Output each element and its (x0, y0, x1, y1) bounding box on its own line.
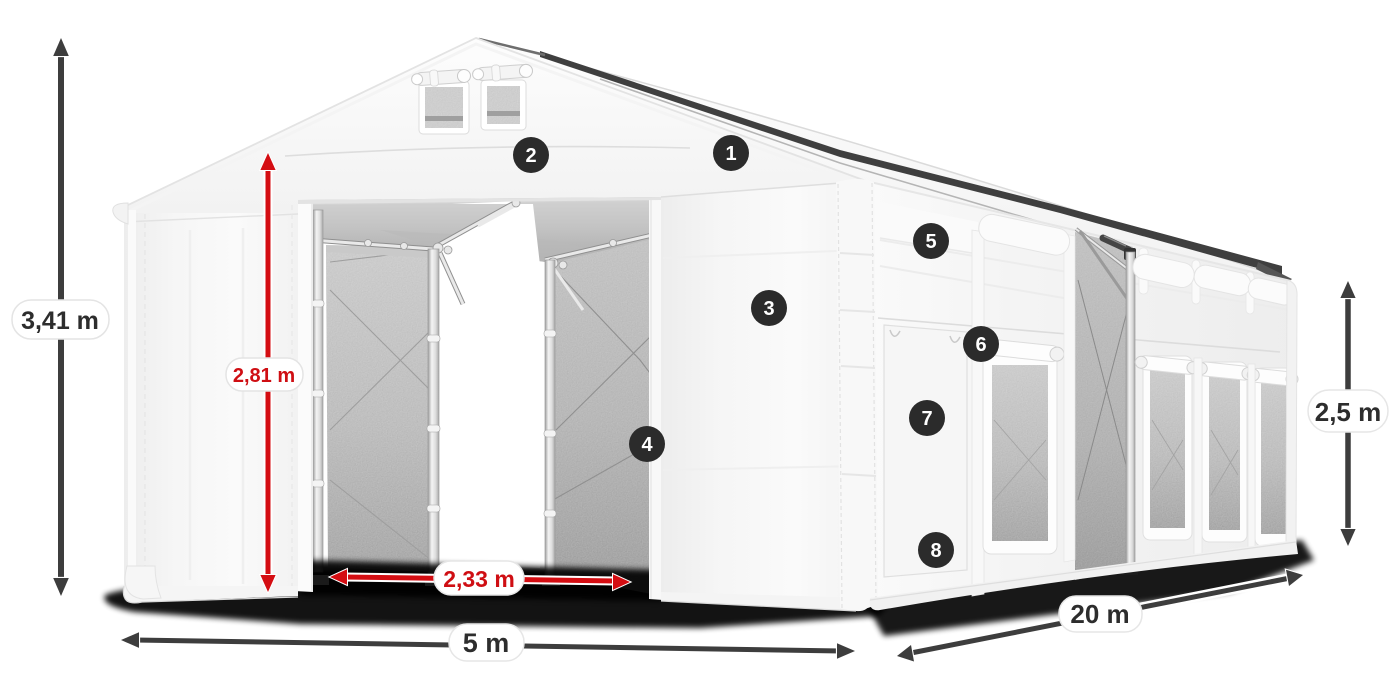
svg-text:2,5 m: 2,5 m (1315, 397, 1382, 427)
svg-text:5 m: 5 m (463, 628, 510, 658)
svg-text:7: 7 (921, 408, 932, 430)
svg-text:5: 5 (925, 231, 936, 253)
svg-text:2,33 m: 2,33 m (443, 566, 515, 592)
svg-text:6: 6 (975, 334, 986, 356)
svg-text:2: 2 (525, 145, 536, 167)
svg-text:3,41 m: 3,41 m (21, 307, 99, 335)
svg-text:2,81 m: 2,81 m (233, 365, 295, 387)
svg-text:20 m: 20 m (1070, 599, 1129, 629)
svg-text:1: 1 (725, 143, 736, 165)
svg-text:3: 3 (763, 298, 774, 320)
svg-text:4: 4 (641, 434, 653, 456)
svg-text:8: 8 (930, 540, 941, 562)
